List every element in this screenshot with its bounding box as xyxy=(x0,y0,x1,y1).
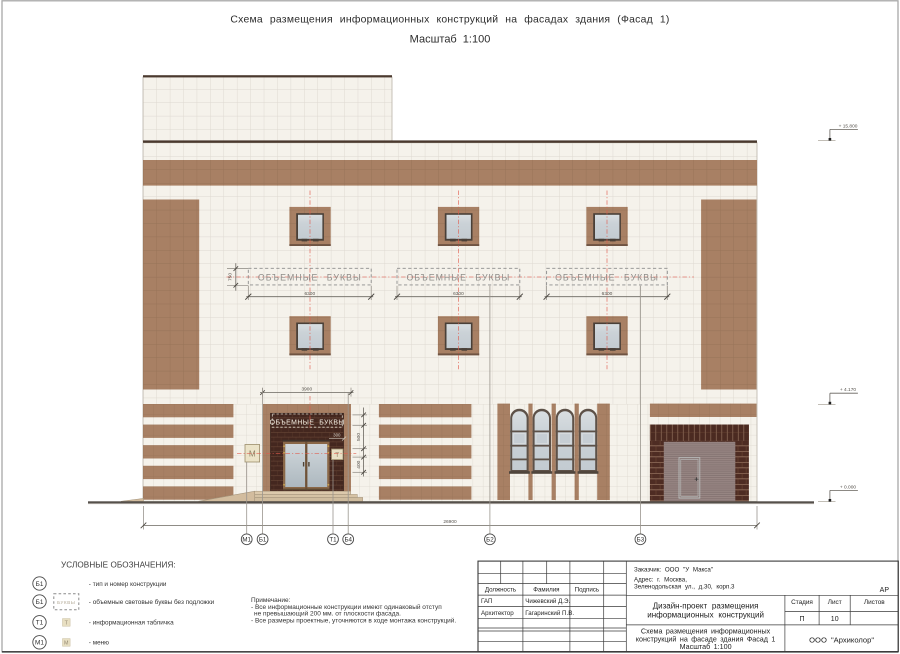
svg-text:ООО "Архиколор": ООО "Архиколор" xyxy=(809,635,874,644)
svg-text:БУКВЫ: БУКВЫ xyxy=(57,600,75,605)
svg-text:750: 750 xyxy=(228,273,234,281)
svg-text:Схема размещения информацион: Схема размещения информационных xyxy=(641,628,771,636)
svg-text:- тип и номер конструкции: - тип и номер конструкции xyxy=(89,581,167,588)
svg-text:УСЛОВНЫЕ ОБОЗНАЧЕНИЯ:: УСЛОВНЫЕ ОБОЗНАЧЕНИЯ: xyxy=(61,560,176,569)
svg-text:Б1: Б1 xyxy=(36,581,44,588)
svg-text:информационных конструкций: информационных конструкций xyxy=(647,611,764,620)
svg-text:не превышающий 200 мм. от плос: не превышающий 200 мм. от плоскости фаса… xyxy=(254,610,401,618)
svg-text:АР: АР xyxy=(880,587,890,594)
svg-text:400: 400 xyxy=(356,460,362,468)
svg-text:Стадия: Стадия xyxy=(791,599,813,606)
svg-text:Масштаб 1:100: Масштаб 1:100 xyxy=(410,34,491,46)
svg-text:- меню: - меню xyxy=(89,640,109,647)
svg-text:6300: 6300 xyxy=(453,291,464,297)
svg-text:Б3: Б3 xyxy=(637,537,645,544)
svg-text:10: 10 xyxy=(831,616,839,623)
svg-text:- информационная табличка: - информационная табличка xyxy=(89,619,174,627)
svg-text:Фамилия: Фамилия xyxy=(533,587,559,594)
svg-text:6300: 6300 xyxy=(602,291,613,297)
svg-text:М1: М1 xyxy=(35,640,44,647)
svg-text:ОБЪЕМНЫЕ БУКВЫ: ОБЪЕМНЫЕ БУКВЫ xyxy=(270,419,345,426)
svg-text:Б1: Б1 xyxy=(36,599,44,606)
svg-text:Адрес: г. Москва,: Адрес: г. Москва, xyxy=(634,576,687,583)
svg-text:М1: М1 xyxy=(242,537,251,544)
svg-text:Подпись: Подпись xyxy=(575,587,600,594)
svg-text:- объемные световые буквы без: - объемные световые буквы без подложки xyxy=(89,598,215,606)
svg-text:Зеленодольская ул., д.30, к: Зеленодольская ул., д.30, корп.3 xyxy=(634,584,735,591)
svg-text:Гагаринский П.В.: Гагаринский П.В. xyxy=(525,610,574,617)
svg-text:Т1: Т1 xyxy=(329,537,337,544)
svg-text:ОБЪЕМНЫЕ БУКВЫ: ОБЪЕМНЫЕ БУКВЫ xyxy=(406,272,510,282)
svg-text:26900: 26900 xyxy=(443,519,457,525)
svg-text:ОБЪЕМНЫЕ БУКВЫ: ОБЪЕМНЫЕ БУКВЫ xyxy=(258,272,362,282)
svg-text:500: 500 xyxy=(356,433,362,441)
svg-text:Чижевский Д.Э.: Чижевский Д.Э. xyxy=(525,598,570,605)
svg-text:+ 0.000: + 0.000 xyxy=(840,484,856,490)
svg-text:- Все размеры проектные, уточн: - Все размеры проектные, уточняются в хо… xyxy=(251,617,456,625)
svg-text:Б1: Б1 xyxy=(259,537,267,544)
svg-text:+ 4.170: + 4.170 xyxy=(840,387,856,393)
svg-text:Т: Т xyxy=(335,452,339,459)
svg-text:3900: 3900 xyxy=(301,387,312,393)
svg-text:Листов: Листов xyxy=(864,599,885,606)
svg-text:Б4: Б4 xyxy=(344,537,352,544)
svg-text:М: М xyxy=(64,641,69,647)
svg-text:Примечание:: Примечание: xyxy=(251,597,291,604)
svg-text:ОБЪЕМНЫЕ БУКВЫ: ОБЪЕМНЫЕ БУКВЫ xyxy=(555,272,659,282)
svg-text:П: П xyxy=(799,616,804,623)
svg-text:300: 300 xyxy=(333,433,341,438)
svg-text:+ 15.800: + 15.800 xyxy=(839,123,858,129)
svg-text:Схема размещения информационны: Схема размещения информационных конструк… xyxy=(230,14,669,26)
svg-text:Т1: Т1 xyxy=(36,620,44,627)
svg-text:Заказчик: ООО "У Макса": Заказчик: ООО "У Макса" xyxy=(634,567,713,574)
svg-text:Масштаб 1:100: Масштаб 1:100 xyxy=(680,643,732,651)
svg-text:Б2: Б2 xyxy=(486,537,494,544)
svg-text:Архитектор: Архитектор xyxy=(481,610,514,617)
svg-text:6300: 6300 xyxy=(304,291,315,297)
svg-text:ГАП: ГАП xyxy=(481,598,492,605)
svg-text:Должность: Должность xyxy=(485,587,516,594)
svg-text:Дизайн-проект размещения: Дизайн-проект размещения xyxy=(653,602,759,611)
svg-text:Лист: Лист xyxy=(828,599,842,606)
